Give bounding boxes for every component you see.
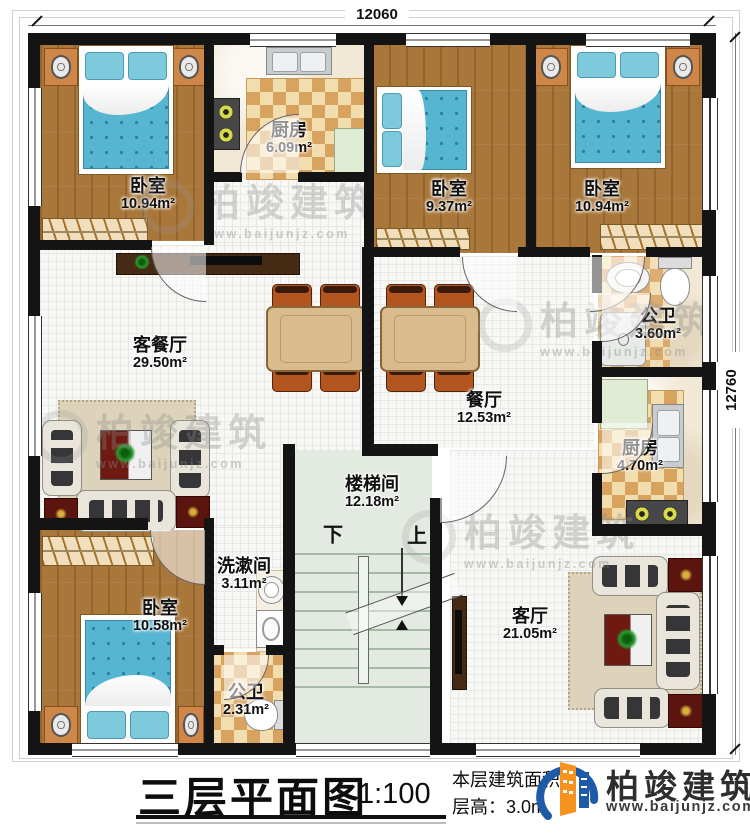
stair-up-label: 上 [407,520,427,549]
room-label-dining: 餐厅12.53m² [457,390,511,426]
sink-basin [657,410,681,436]
wall-ld-bottom [40,518,148,530]
window-left-bedroom-bl [28,593,42,711]
wall-bedrooms-btm-a [372,247,460,257]
nightstand [172,48,206,86]
title-underline-thin [136,822,446,824]
window-top-bedroom-mid [406,33,490,47]
pillow [382,93,403,129]
pillow [577,52,617,78]
window-bottom-living [476,743,640,757]
wall-btl-bottom [40,240,152,250]
window-left-bedroom-tl [28,88,42,206]
floor-plan-canvas: 下 上 卧室10.94m² 厨房6.09m² 卧室9.37m² 卧室10.94m… [0,0,750,839]
sink-basin [300,52,326,72]
stove-burner [662,506,678,522]
wall-stair-right [430,498,442,745]
room-label-living-dining: 客餐厅29.50m² [133,335,187,371]
nightstand [44,48,78,86]
pillow [382,131,403,167]
kitchen-right-fridge [600,379,648,429]
room-label-stairwell: 楼梯间12.18m² [345,474,399,510]
wardrobe-bedroom-bl [42,536,154,566]
armchair [170,420,210,498]
room-label-bedroom-tl: 卧室10.94m² [121,176,175,212]
sofa-cushions [179,430,200,488]
bed-top-mid [376,86,472,174]
room-label-bedroom-tr: 卧室10.94m² [575,179,629,215]
stove-burner [218,127,234,143]
window-right-bedroom-tr [702,98,718,210]
dimension-right-value: 12760 [720,352,744,428]
end-table [668,694,704,728]
wall-wash-bath-a [204,645,224,655]
nightstand-dial [183,713,198,736]
sink-basin [272,52,298,72]
nightstand-dial [51,713,72,736]
bed-top-left [78,45,174,175]
sofa-cushions [51,430,72,486]
room-label-living: 客厅21.05m² [503,606,557,642]
plant [134,254,150,270]
nightstand [178,706,204,744]
bed-top-right [570,45,666,169]
pillow [130,711,170,739]
brand-url: www.baijunjz.com [606,799,750,815]
wall-stair-left [283,444,295,745]
window-bottom-bedroom-bl [72,743,178,757]
room-label-bedroom-tm: 卧室9.37m² [426,179,472,215]
floor-height-text: 层高：3.0m [452,793,546,819]
tv-living [455,610,462,674]
wall-kitr-bottom [592,524,712,536]
nightstand-dial [179,55,200,78]
bed-sheet [403,90,426,169]
dimension-top-value: 12060 [345,5,409,25]
nightstand-dial [541,55,562,78]
plan-scale: 1:100 [358,778,431,811]
wall-bedrooms-btm-c [646,247,712,257]
wall-btm-btr [526,45,536,257]
pillow [85,52,125,80]
wall-btl-kitchen [204,45,214,245]
brand-logo-icon [534,754,602,828]
window-bottom-stair [296,743,430,757]
window-right-bath [702,276,718,362]
window-right-living [702,556,718,694]
wall-kitr-left-a [592,377,602,423]
nightstand [666,48,700,86]
window-top-kitchen [250,33,336,47]
wall-kitchen-btm-l [204,172,242,182]
kitchen-top-fridge [334,128,368,176]
wall-kitchen-btm-r [298,172,374,182]
sofa-living-right [656,592,700,690]
stair-guide-line [401,548,403,596]
pillow [620,52,660,78]
sofa-living-top [592,556,668,596]
stair-arrow-down-icon [396,596,408,606]
dining-table-b [380,306,480,372]
stair-arrow-up-icon [396,620,408,630]
title-underline [136,815,446,819]
nightstand [44,706,78,744]
window-right-kitchen [702,390,718,502]
room-label-bedroom-bl: 卧室10.58m² [133,598,187,634]
nightstand-dial [51,55,72,78]
wall-bath-bottom [592,367,712,377]
pillow [87,711,127,739]
sofa-cushions [666,605,690,678]
pillow [128,52,168,80]
stove-burner [218,104,234,120]
dimension-line-top [28,25,716,26]
window-top-bedroom-right [586,33,690,47]
wall-wash-bath-b [266,645,288,655]
nightstand-dial [673,55,694,78]
toilet-bowl [660,268,690,306]
sofa-living-bottom [594,688,670,728]
wall-bedrooms-btm-b [518,247,590,257]
armchair [42,420,82,496]
wall-kitchen-btm [364,45,374,247]
sofa-cushions [602,565,658,586]
kitchen-top-sink [266,47,332,75]
end-table [668,558,704,592]
dining-table-a [266,306,366,372]
nightstand [534,48,568,86]
kitchen-top-stove [212,98,240,150]
room-label-washroom: 洗漱间3.11m² [217,556,271,592]
sofa-cushions [604,697,660,718]
plant [114,442,136,464]
wall-ld-dining [362,247,374,452]
washing-machine [256,610,286,648]
plant [616,628,638,650]
stair-down-label: 下 [323,519,343,548]
wall-dining-btm [362,444,438,456]
window-left-living-dining [28,316,42,456]
wall-bbl-right [204,518,214,745]
stove-burner [634,506,650,522]
